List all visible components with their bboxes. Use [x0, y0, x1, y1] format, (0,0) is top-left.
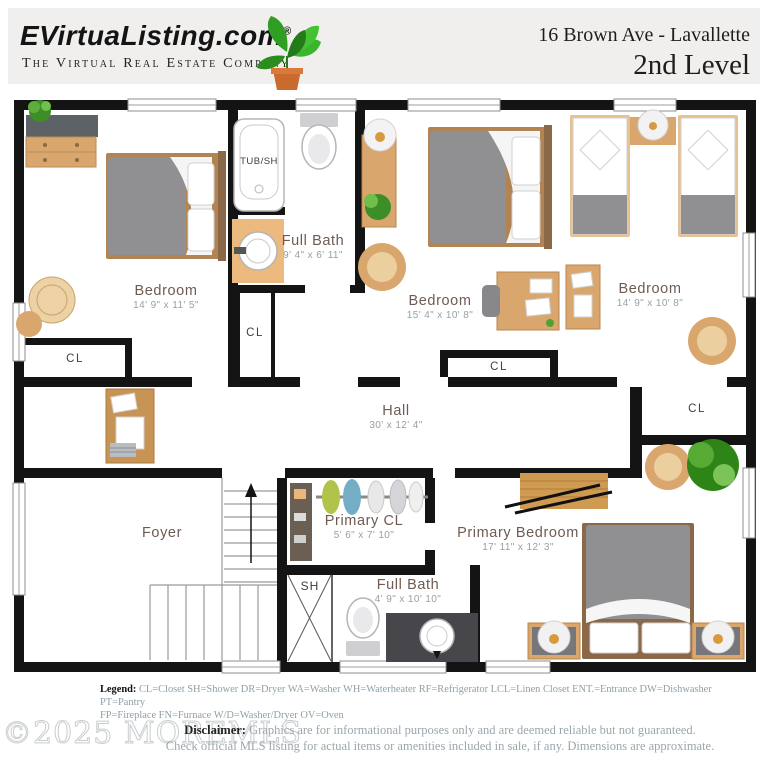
room-label-primary-bedroom: Primary Bedroom 17' 11" x 12' 3" — [457, 525, 579, 553]
potted-plant-icon — [251, 12, 323, 92]
floorplan: Bedroom 14' 9" x 11' 5" Full Bath 9' 4" … — [0, 95, 768, 675]
chair — [16, 311, 42, 337]
nightstand — [528, 621, 580, 659]
legend: Legend: CL=Closet SH=Shower DR=Dryer WA=… — [100, 683, 752, 722]
disclaimer-title: Disclaimer: — [184, 723, 246, 737]
disclaimer-line1: Graphics are for informational purposes … — [249, 723, 696, 737]
room-label-full-bath-bottom: Full Bath 4' 9" x 10' 10" — [375, 577, 441, 605]
room-label-hall: Hall 30' x 12' 4" — [369, 403, 422, 431]
tub-shower-label: TUB/SH — [240, 156, 278, 167]
closet-label-bedroom-left: CL — [66, 353, 84, 365]
closet-label-bedroom-middle: CL — [490, 361, 508, 373]
nightstand — [692, 621, 744, 659]
desk — [482, 272, 559, 330]
hall-furniture — [106, 389, 154, 463]
bed — [428, 125, 552, 249]
room-label-primary-cl: Primary CL 5' 6" x 7' 10" — [325, 513, 404, 541]
staircase — [150, 478, 277, 660]
twin-bed — [570, 115, 630, 237]
desk — [566, 265, 600, 329]
twin-bed — [678, 115, 738, 237]
bed — [582, 523, 694, 659]
room-label-full-bath-top: Full Bath 9' 4" x 6' 11" — [282, 233, 345, 261]
closet-label-corridor: CL — [246, 327, 264, 339]
room-label-foyer: Foyer — [142, 525, 182, 541]
disclaimer-line2: Check official MLS listing for actual it… — [166, 739, 714, 753]
listing-address: 16 Brown Ave - Lavallette — [538, 22, 750, 48]
bed — [106, 151, 226, 261]
room-label-bedroom-left: Bedroom 14' 9" x 11' 5" — [133, 283, 199, 311]
brand-text: EVirtuaListing.com — [20, 20, 283, 51]
stairs-up-arrow — [245, 483, 257, 497]
legend-line2: FP=Fireplace FN=Furnace W/D=Washer/Dryer… — [100, 710, 344, 721]
shower-label: SH — [301, 579, 320, 593]
faucet — [234, 247, 246, 254]
bedroom-right-furniture — [566, 110, 738, 365]
listing-level: 2nd Level — [538, 48, 750, 83]
room-label-bedroom-right: Bedroom 14' 9" x 10' 8" — [617, 281, 683, 309]
clothes — [322, 480, 340, 514]
floorplan-page: EVirtuaListing.com® The Virtual Real Est… — [0, 0, 768, 768]
legend-line1: CL=Closet SH=Shower DR=Dryer WA=Washer W… — [100, 684, 712, 708]
disclaimer: Disclaimer: Graphics are for information… — [120, 722, 760, 755]
closet-label-hall-right: CL — [688, 403, 706, 415]
room-label-bedroom-middle: Bedroom 15' 4" x 10' 8" — [407, 293, 473, 321]
legend-title: Legend: — [100, 684, 136, 695]
sink — [420, 619, 454, 653]
toilet-tank — [346, 641, 380, 656]
listing-title: 16 Brown Ave - Lavallette 2nd Level — [538, 22, 750, 83]
header-band: EVirtuaListing.com® The Virtual Real Est… — [8, 8, 760, 84]
desk-chair — [482, 285, 500, 317]
